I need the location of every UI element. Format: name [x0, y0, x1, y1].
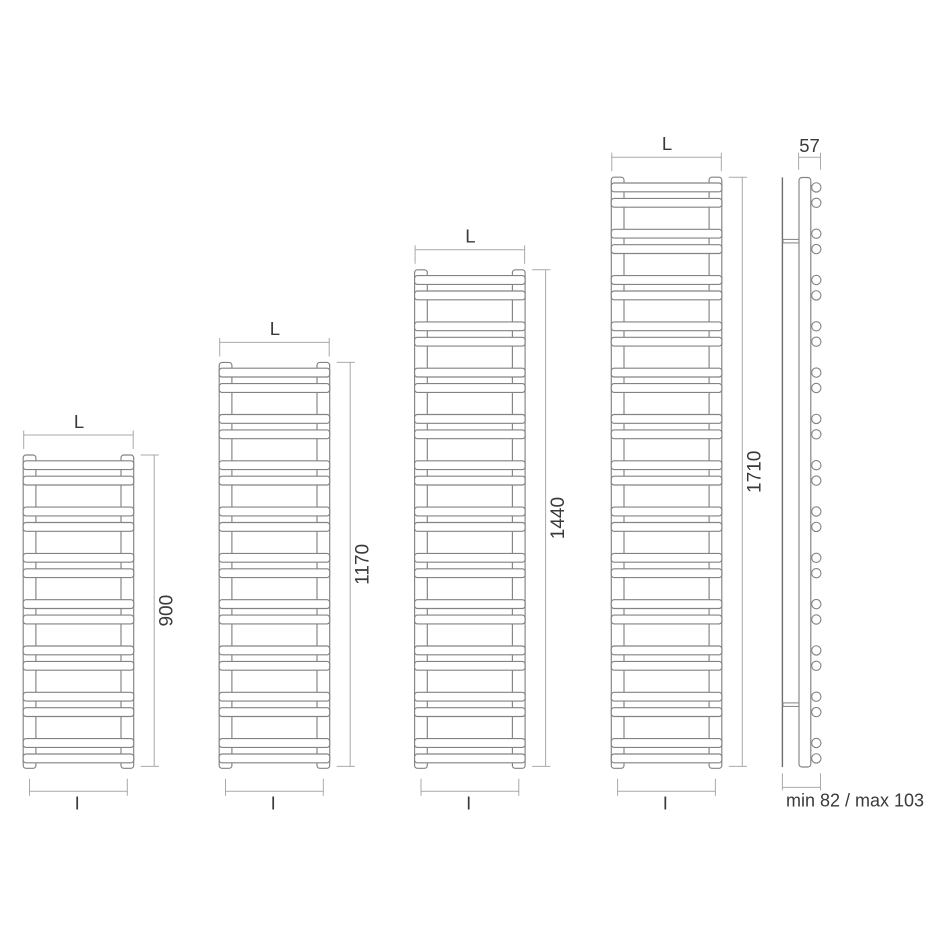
svg-text:I: I	[271, 792, 276, 813]
svg-text:I: I	[466, 792, 471, 813]
svg-text:L: L	[270, 318, 280, 339]
svg-text:min 82 / max 103: min 82 / max 103	[786, 791, 924, 811]
svg-text:1710: 1710	[745, 451, 766, 493]
svg-text:57: 57	[799, 135, 820, 156]
svg-text:900: 900	[156, 595, 177, 627]
svg-text:L: L	[662, 133, 672, 154]
svg-text:L: L	[74, 411, 84, 432]
svg-text:L: L	[465, 226, 475, 247]
svg-text:I: I	[75, 792, 80, 813]
svg-text:I: I	[663, 792, 668, 813]
svg-text:1440: 1440	[548, 497, 569, 539]
svg-text:1170: 1170	[352, 544, 373, 585]
